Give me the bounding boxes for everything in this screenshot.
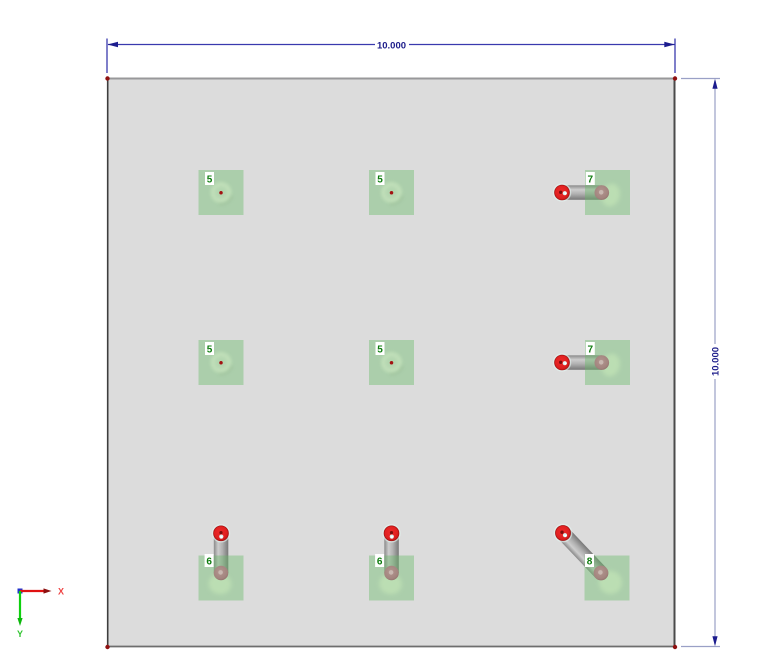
svg-text:5: 5 [377,345,383,356]
svg-text:5: 5 [207,345,213,356]
svg-text:7: 7 [588,345,594,356]
svg-text:Y: Y [17,629,23,639]
svg-text:10.000: 10.000 [710,347,721,376]
svg-text:5: 5 [207,175,213,186]
svg-text:8: 8 [587,557,593,568]
svg-text:X: X [58,587,64,597]
svg-text:7: 7 [588,175,594,186]
svg-text:10.000: 10.000 [377,41,406,52]
svg-text:5: 5 [377,175,383,186]
svg-text:6: 6 [206,557,212,568]
svg-text:6: 6 [377,557,383,568]
